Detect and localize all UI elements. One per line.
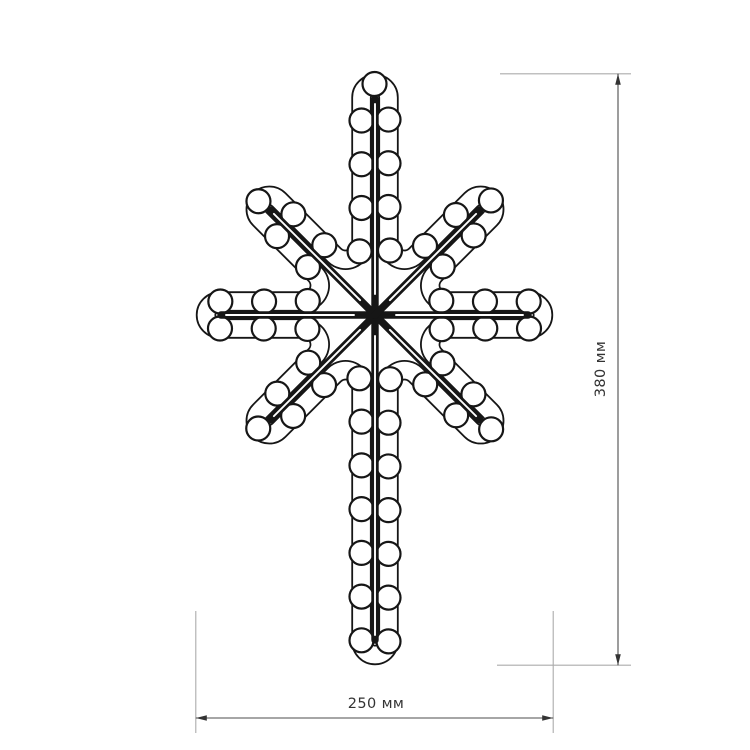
width-arrow-right <box>542 715 553 721</box>
led-bulb <box>430 317 454 341</box>
led-bulb <box>350 109 374 133</box>
led-bulb <box>363 72 387 96</box>
led-bulb <box>246 416 270 440</box>
led-bulb <box>377 542 401 566</box>
led-bulb <box>473 290 497 314</box>
width-dimension-label: 250 мм <box>336 695 416 713</box>
led-bulb <box>350 585 374 609</box>
height-dimension-label: 380 мм <box>592 329 610 409</box>
technical-drawing <box>0 0 750 750</box>
led-bulb <box>377 151 401 175</box>
led-bulb <box>350 497 374 521</box>
led-bulb <box>377 108 401 132</box>
led-bulb <box>377 454 401 478</box>
led-bulb <box>377 195 401 219</box>
led-bulb <box>350 628 374 652</box>
led-bulb <box>296 289 320 313</box>
width-arrow-left <box>196 715 207 721</box>
drawing-canvas: 380 мм 250 мм <box>0 0 750 750</box>
led-bulb <box>429 289 453 313</box>
led-bulb <box>377 586 401 610</box>
height-arrow-top <box>615 74 621 85</box>
led-bulb <box>378 367 402 391</box>
led-bulb <box>208 290 232 314</box>
led-bulb <box>350 541 374 565</box>
led-bulb <box>377 629 401 653</box>
height-arrow-bottom <box>615 654 621 665</box>
frame-rods <box>221 99 528 640</box>
led-bulb <box>350 196 374 220</box>
led-bulb <box>295 317 319 341</box>
led-bulb <box>473 317 497 341</box>
led-bulb <box>377 498 401 522</box>
led-bulb <box>517 290 541 314</box>
led-bulb <box>252 290 276 314</box>
led-bulb <box>208 317 232 341</box>
led-bulb <box>347 366 371 390</box>
led-bulb <box>348 239 372 263</box>
led-bulb <box>350 410 374 434</box>
led-bulb <box>252 317 276 341</box>
led-bulb <box>350 152 374 176</box>
led-bulb <box>350 453 374 477</box>
led-bulb <box>378 239 402 263</box>
led-bulb <box>377 411 401 435</box>
led-bulb <box>517 317 541 341</box>
